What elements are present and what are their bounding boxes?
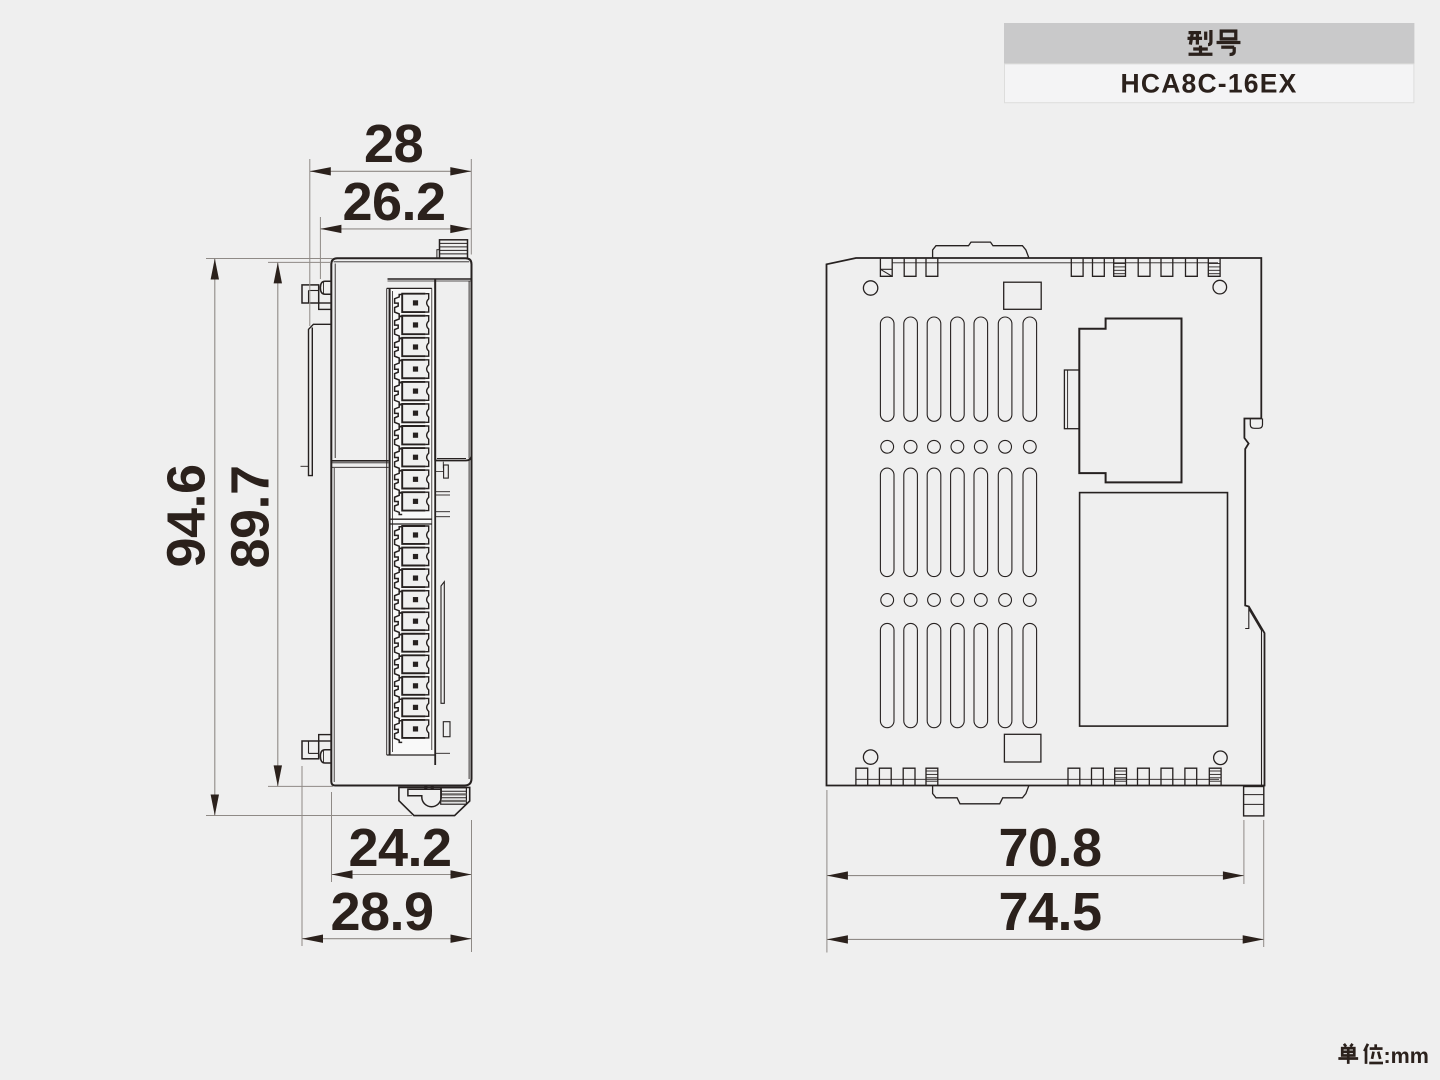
svg-text::mm: :mm [1384,1044,1429,1068]
svg-text:HCA8C-16EX: HCA8C-16EX [1121,69,1298,99]
svg-text:28: 28 [364,114,423,174]
svg-text:70.8: 70.8 [998,818,1101,878]
svg-text:26.2: 26.2 [342,172,445,232]
svg-text:28.9: 28.9 [330,882,433,942]
svg-text:89.7: 89.7 [221,465,281,568]
svg-text:24.2: 24.2 [348,818,451,878]
svg-text:94.6: 94.6 [157,464,217,567]
svg-text:74.5: 74.5 [998,882,1101,942]
